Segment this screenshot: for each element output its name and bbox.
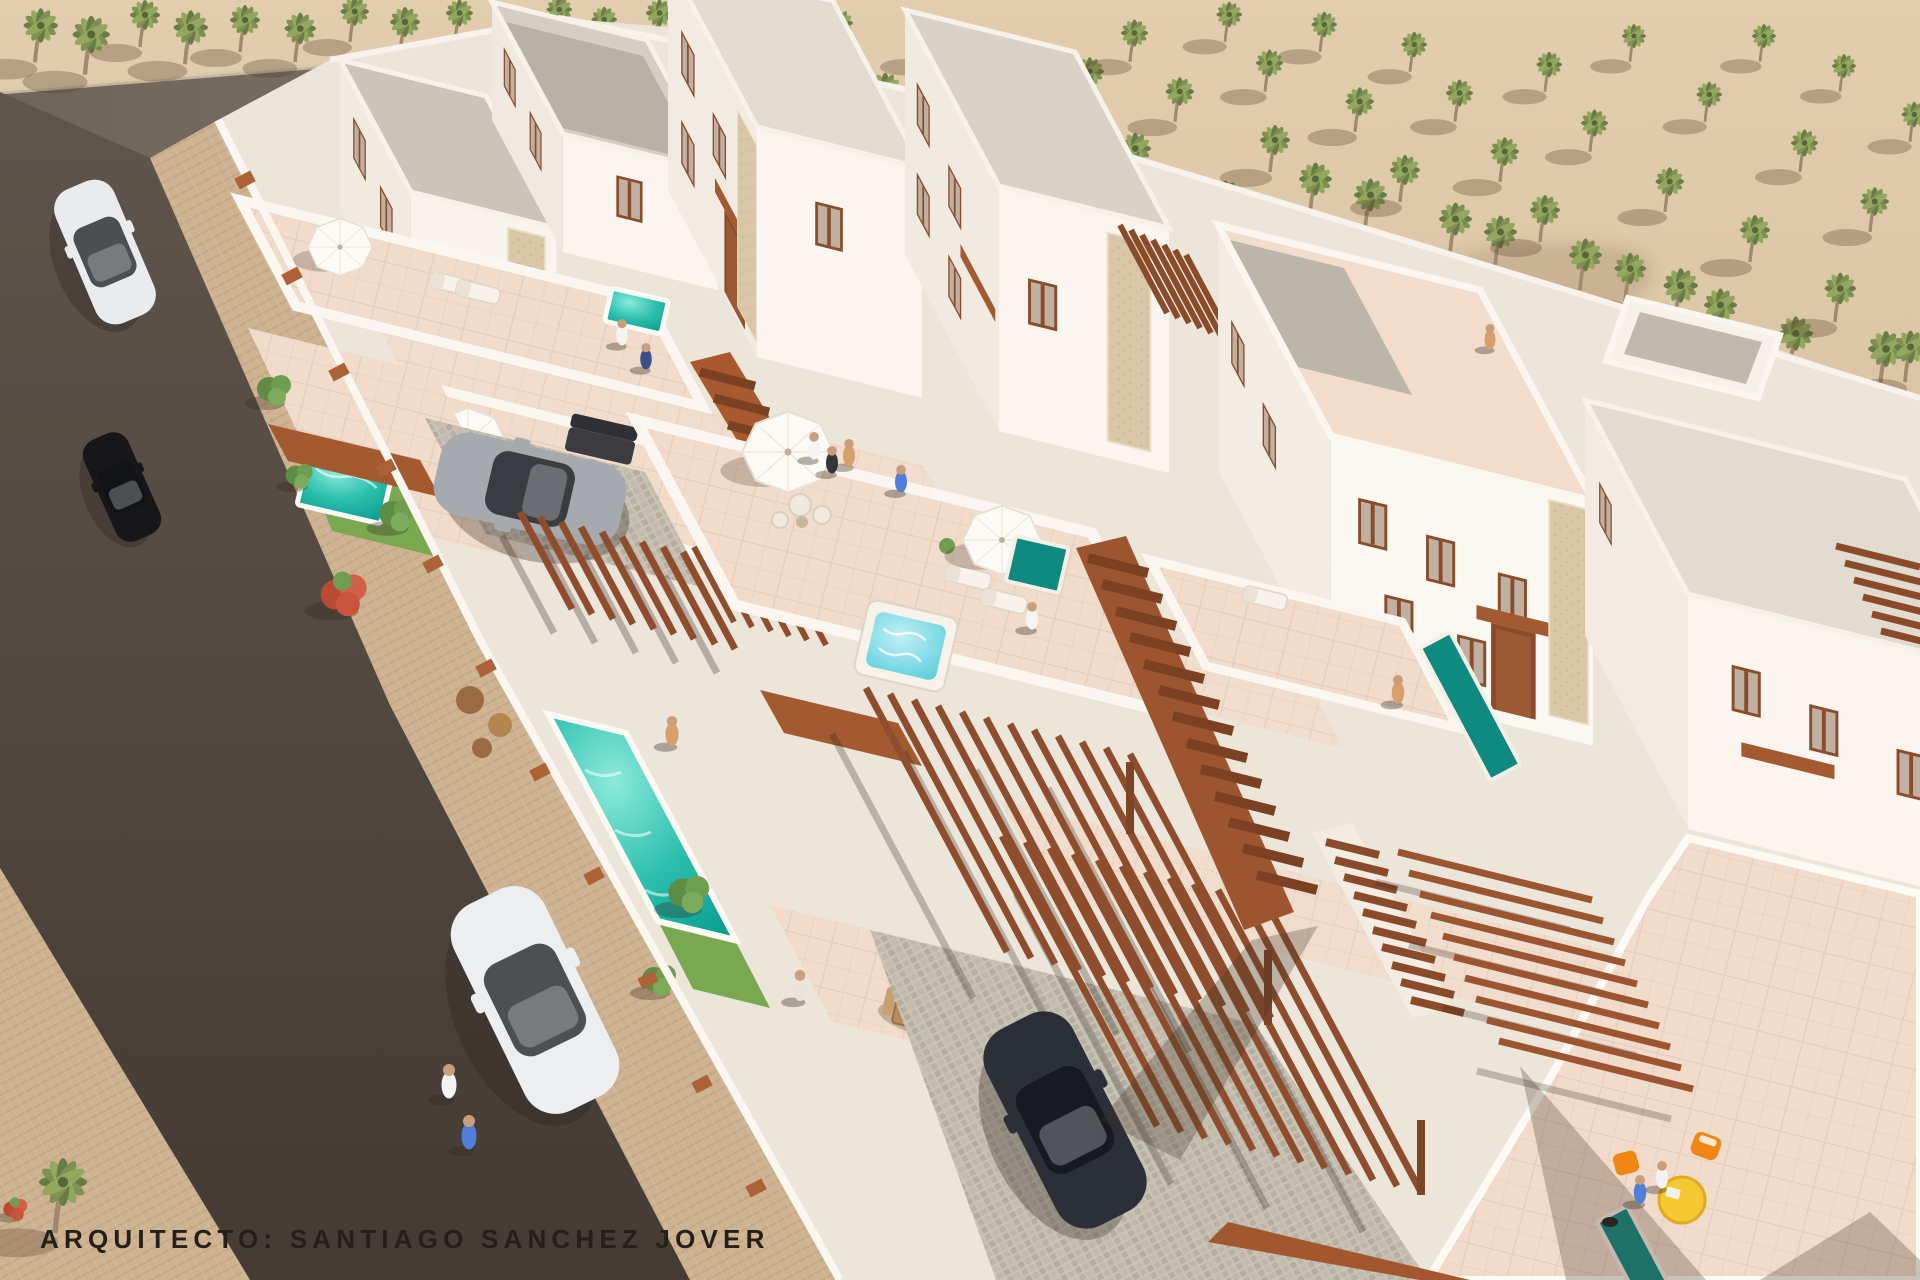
- rattan-chair: [456, 686, 484, 714]
- window: [1897, 749, 1920, 802]
- window: [1732, 665, 1761, 718]
- stone-cladding-panel: [738, 110, 757, 341]
- pergola-post: [1126, 762, 1134, 834]
- pouf: [789, 494, 811, 516]
- window: [1028, 278, 1057, 331]
- architectural-render-page: ARQUITECTO: SANTIAGO SANCHEZ JOVER: [0, 0, 1920, 1280]
- rattan-table: [472, 738, 492, 758]
- lap-pool: [1006, 536, 1069, 593]
- window: [1809, 704, 1838, 757]
- window: [1426, 535, 1455, 588]
- stone-cladding-panel: [1549, 500, 1588, 725]
- entry-door: [1491, 623, 1536, 720]
- architect-caption: ARQUITECTO: SANTIAGO SANCHEZ JOVER: [40, 1224, 770, 1254]
- window: [1358, 498, 1387, 551]
- pouf: [772, 512, 788, 528]
- side-table: [796, 516, 808, 528]
- window: [815, 201, 843, 252]
- rattan-chair: [488, 713, 512, 737]
- dog: [1602, 1217, 1618, 1227]
- aerial-architectural-rendering: ARQUITECTO: SANTIAGO SANCHEZ JOVER: [0, 0, 1920, 1280]
- window: [616, 175, 642, 223]
- pouf: [813, 506, 831, 524]
- pergola-post: [1417, 1120, 1425, 1195]
